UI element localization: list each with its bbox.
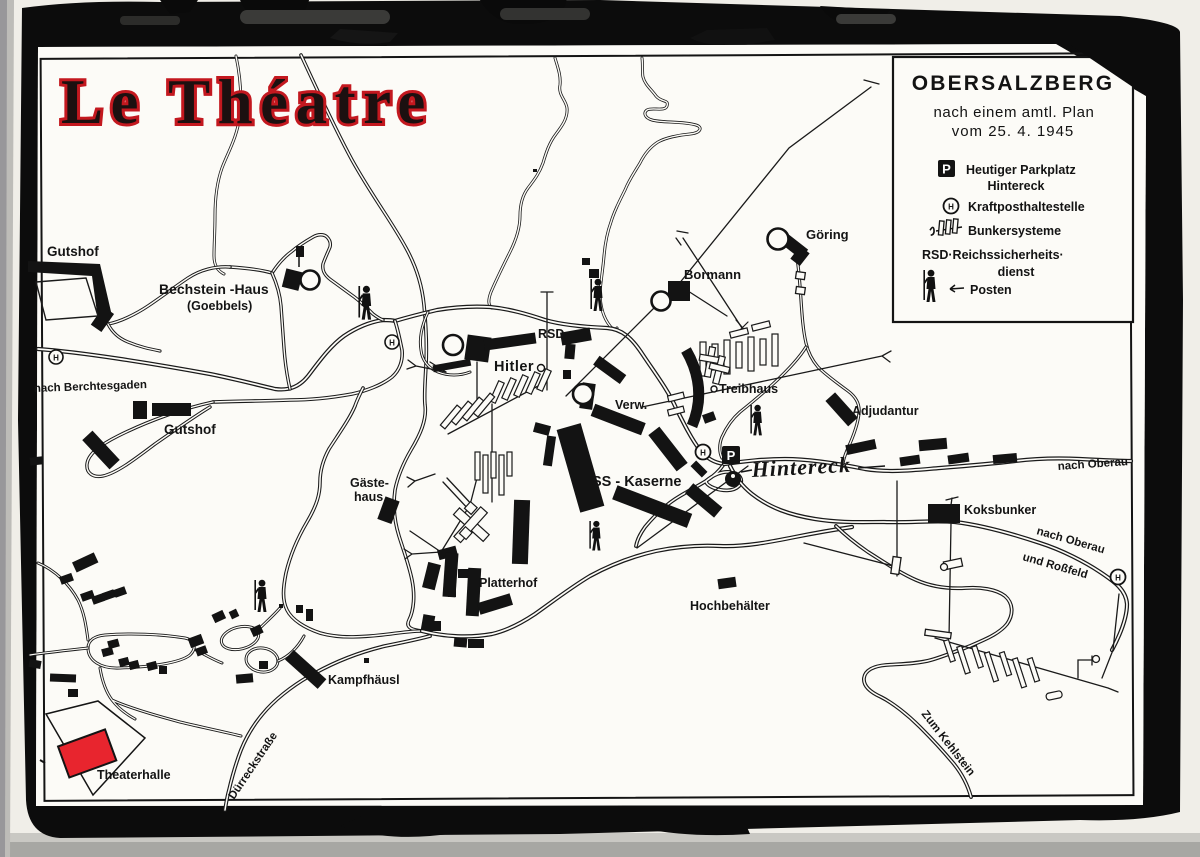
svg-text:Hitler: Hitler: [494, 359, 534, 375]
svg-text:Posten: Posten: [970, 283, 1012, 297]
svg-text:Kampfhäusl: Kampfhäusl: [328, 673, 400, 687]
svg-text:H: H: [389, 339, 395, 348]
svg-text:Bormann: Bormann: [684, 267, 741, 282]
svg-text:Hochbehälter: Hochbehälter: [690, 599, 770, 613]
svg-text:P: P: [942, 162, 951, 177]
svg-text:Heutiger Parkplatz: Heutiger Parkplatz: [966, 163, 1076, 177]
svg-text:Le Théatre: Le Théatre: [61, 67, 433, 137]
svg-text:Koksbunker: Koksbunker: [964, 503, 1036, 517]
svg-text:P: P: [727, 448, 736, 463]
svg-text:Gäste-: Gäste-: [350, 476, 389, 490]
svg-text:vom 25. 4. 1945: vom 25. 4. 1945: [952, 123, 1075, 140]
svg-text:haus: haus: [354, 490, 383, 504]
svg-text:Gutshof: Gutshof: [164, 422, 216, 437]
svg-text:SS - Kaserne: SS - Kaserne: [592, 474, 681, 490]
svg-text:RSD·Reichssicherheits·: RSD·Reichssicherheits·: [922, 248, 1064, 262]
svg-text:(Goebbels): (Goebbels): [187, 299, 252, 313]
svg-text:Gutshof: Gutshof: [47, 244, 99, 259]
svg-text:nach einem amtl. Plan: nach einem amtl. Plan: [933, 104, 1094, 121]
svg-text:H: H: [700, 449, 706, 458]
svg-text:RSD.: RSD.: [538, 327, 568, 341]
svg-text:OBERSALZBERG: OBERSALZBERG: [912, 72, 1115, 95]
svg-text:H: H: [1115, 574, 1121, 583]
svg-text:Verw.: Verw.: [615, 398, 647, 412]
svg-text:H: H: [53, 354, 59, 363]
svg-text:Adjudantur: Adjudantur: [852, 404, 919, 418]
svg-text:Bunkersysteme: Bunkersysteme: [968, 224, 1061, 238]
svg-text:Hintereck: Hintereck: [750, 452, 852, 482]
svg-text:H: H: [948, 203, 954, 212]
svg-text:Treibhaus: Treibhaus: [719, 382, 778, 396]
svg-text:Bechstein -Haus: Bechstein -Haus: [159, 281, 269, 297]
svg-text:Theaterhalle: Theaterhalle: [97, 768, 171, 782]
svg-text:Hintereck: Hintereck: [988, 179, 1045, 193]
svg-text:Göring: Göring: [806, 227, 849, 242]
svg-text:Kraftposthaltestelle: Kraftposthaltestelle: [968, 200, 1085, 214]
svg-text:Platterhof: Platterhof: [479, 576, 538, 590]
svg-text:dienst: dienst: [998, 265, 1036, 279]
